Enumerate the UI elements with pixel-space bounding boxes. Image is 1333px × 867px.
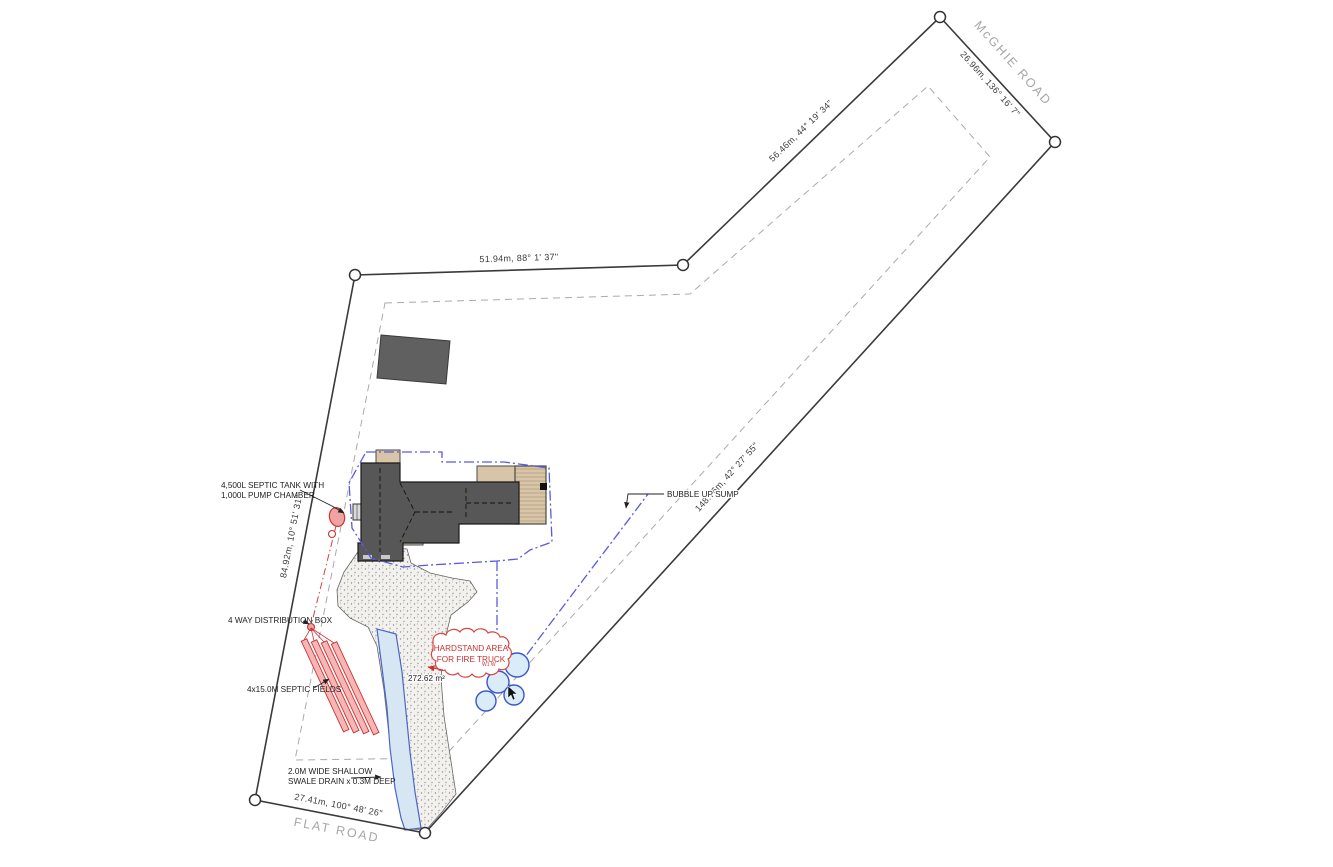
septic-fields-label: 4x15.0M SEPTIC FIELDS — [247, 685, 342, 694]
septic-tank-label-line2: 1,000L PUMP CHAMBER — [221, 491, 315, 500]
driveway-area-label: 272.62 m² — [408, 674, 445, 683]
hardstand-revision-cloud: HARDSTAND AREA FOR FIRE TRUCK W1 W — [428, 628, 511, 677]
road-label-flat: FLAT ROAD — [293, 815, 381, 845]
dimension-northeast: 56.46m, 44° 19' 34" — [767, 98, 835, 164]
boundary-corner-marker — [935, 12, 946, 23]
tree — [504, 685, 524, 705]
bubble-up-sump-label: BUBBLE UP SUMP — [667, 490, 739, 499]
porch-top-right — [477, 466, 515, 482]
road-label-mcghie: McGHIE ROAD — [971, 18, 1054, 108]
house — [353, 450, 547, 561]
tree — [476, 691, 496, 711]
hardstand-label-line1: HARDSTAND AREA — [434, 644, 509, 653]
swale-label-line2: SWALE DRAIN x 0.3M DEEP — [288, 777, 396, 786]
dimension-south: 27.41m, 100° 48' 26" — [294, 792, 384, 819]
site-boundary — [250, 12, 1061, 839]
garage-door-label — [381, 555, 390, 559]
site-plan-canvas: 51.94m, 88° 1' 37" 56.46m, 44° 19' 34" M… — [0, 0, 1333, 867]
site-plan-drawing: 51.94m, 88° 1' 37" 56.46m, 44° 19' 34" M… — [0, 0, 1333, 867]
boundary-corner-marker — [420, 828, 431, 839]
dimension-north: 51.94m, 88° 1' 37" — [479, 252, 558, 264]
boundary-corner-marker — [350, 270, 361, 281]
septic-tank-label-line1: 4,500L SEPTIC TANK WITH — [221, 481, 324, 490]
swale-label-line1: 2.0M WIDE SHALLOW — [288, 767, 372, 776]
boundary-corner-marker — [250, 795, 261, 806]
pump-chamber — [329, 531, 336, 538]
deck-post — [540, 483, 547, 490]
boundary-corner-marker — [678, 260, 689, 271]
boundary-corner-marker — [1050, 137, 1061, 148]
septic-pipe — [311, 526, 336, 626]
deck-right — [515, 466, 546, 524]
distribution-box-label: 4 WAY DISTRIBUTION BOX — [228, 616, 333, 625]
shed — [377, 335, 450, 384]
hardstand-small-note: W1 W — [482, 662, 496, 668]
distribution-connectors — [304, 628, 334, 643]
